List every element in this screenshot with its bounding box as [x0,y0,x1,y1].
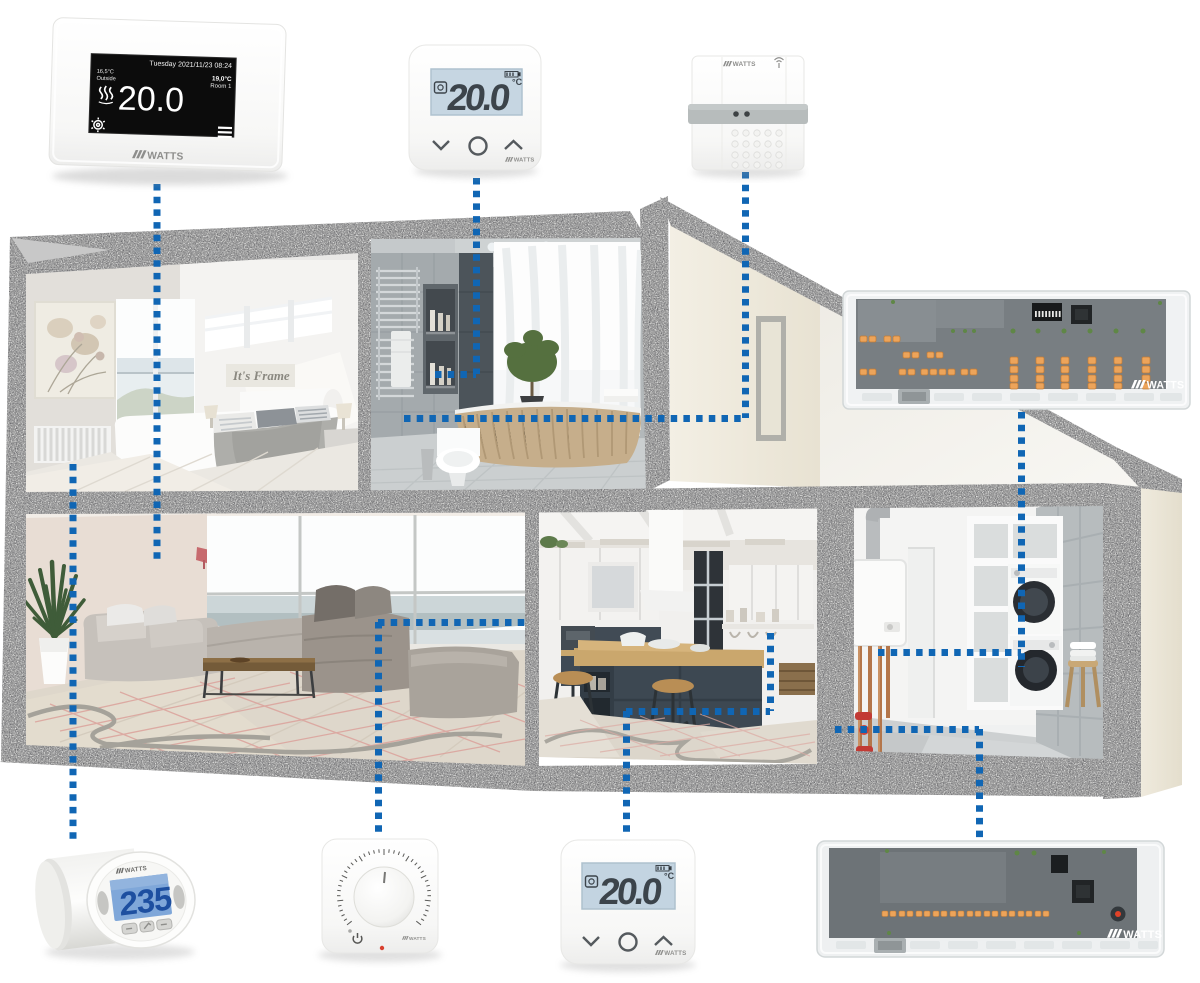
svg-text:Outside: Outside [96,76,115,83]
svg-text:16,5°C: 16,5°C [97,69,114,76]
svg-text:19,0°C: 19,0°C [212,74,232,83]
svg-text:It's Frame: It's Frame [232,368,290,383]
svg-text:20.0: 20.0 [445,76,512,118]
svg-text:20.0: 20.0 [117,79,184,119]
svg-text:°C: °C [664,871,675,881]
svg-text:Room 1: Room 1 [210,83,232,90]
svg-text:235: 235 [119,880,173,923]
svg-text:20.0: 20.0 [597,870,664,912]
svg-text:°C: °C [512,77,523,87]
